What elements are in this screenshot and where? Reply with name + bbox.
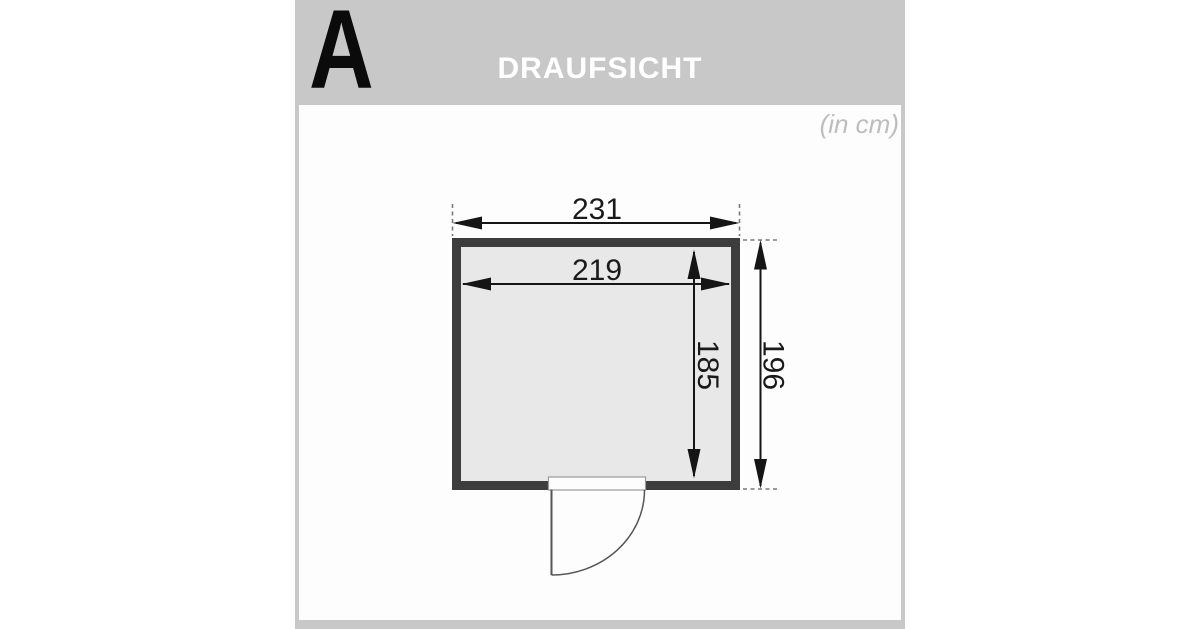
page: A DRAUFSICHT (in cm) 231 219 [0, 0, 1200, 629]
dimension-outer-width: 231 [453, 193, 740, 236]
dimension-value-outer-depth: 196 [757, 340, 790, 390]
arrowhead-left-icon [453, 217, 483, 230]
door-opening [549, 477, 646, 490]
arrowhead-down-icon [754, 459, 767, 489]
floorplan-diagram: 231 219 185 196 [0, 0, 1200, 629]
door [549, 477, 646, 575]
door-swing-arc [552, 490, 645, 575]
dimension-value-inner-depth: 185 [691, 340, 724, 390]
dimension-value-outer-width: 231 [572, 193, 622, 226]
dimension-outer-depth: 196 [743, 240, 790, 489]
arrowhead-right-icon [710, 217, 740, 230]
arrowhead-up-icon [754, 240, 767, 270]
dimension-value-inner-width: 219 [572, 254, 622, 287]
